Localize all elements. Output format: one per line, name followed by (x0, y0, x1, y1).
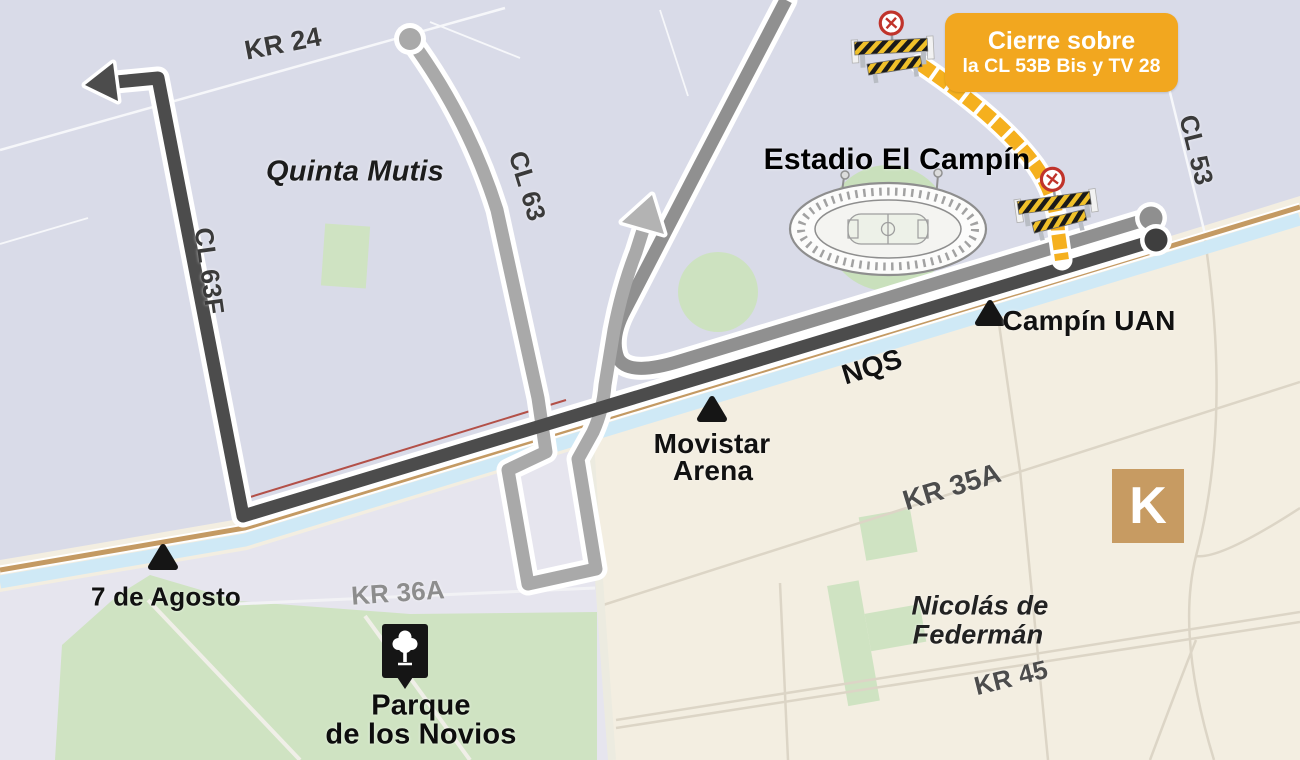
green-circle (678, 252, 758, 332)
closure-callout-line1: Cierre sobre (988, 28, 1135, 55)
place-label-estadio: Estadio El Campín (764, 143, 1031, 177)
map-graphics (0, 0, 1300, 760)
detour-map-canvas: KR 24 Quinta Mutis CL 63 CL 63F Estadio … (0, 0, 1300, 760)
place-label-7-de-agosto: 7 de Agosto (91, 582, 241, 613)
k-marker: K (1112, 469, 1184, 543)
route-start-dot-dark-core (1145, 229, 1168, 252)
place-label-campin-uan: Campín UAN (1002, 305, 1175, 337)
k-marker-letter: K (1129, 476, 1167, 536)
place-label-movistar-line2: Arena (673, 455, 753, 487)
closure-callout-line2: la CL 53B Bis y TV 28 (963, 55, 1161, 77)
closure-callout: Cierre sobre la CL 53B Bis y TV 28 (945, 13, 1178, 92)
place-label-nicolas-line2: Federmán (913, 620, 1044, 651)
place-label-quinta-mutis: Quinta Mutis (266, 156, 444, 189)
place-label-nicolas-line1: Nicolás de (911, 591, 1048, 622)
place-label-parque-line2: de los Novios (325, 719, 516, 752)
route-cap-dot-core (399, 28, 421, 50)
green-block-quinta (321, 224, 370, 289)
road-label-kr36a: KR 36A (350, 574, 446, 611)
